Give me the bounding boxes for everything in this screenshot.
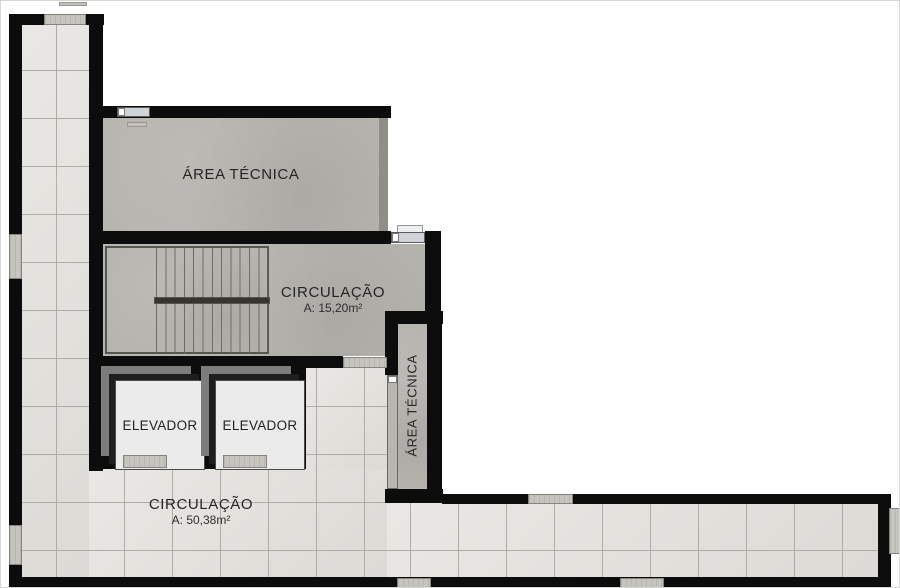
window-left-wall-upper <box>9 234 22 279</box>
door-opening-corridor-north <box>528 494 573 504</box>
circulacao-stairs-label: CIRCULAÇÃO <box>253 284 413 300</box>
door-opening-top-corridor <box>44 14 86 25</box>
elevator-1-door-sill <box>123 455 167 468</box>
stair-treads-upper <box>156 248 268 298</box>
area-tecnica-top-label: ÁREA TÉCNICA <box>141 166 341 182</box>
elevator-2-shaft: ELEVADOR <box>209 374 299 464</box>
area-tecnica-shaft-label: ÁREA TÉCNICA <box>405 346 420 466</box>
window-left-wall-lower <box>9 525 22 565</box>
corridor-bottom-right-floor <box>387 503 878 577</box>
window-cap-icon <box>392 233 399 242</box>
elevator-2: ELEVADOR <box>201 366 291 456</box>
wall-stairs-right <box>425 231 441 314</box>
wall-stairs-top <box>89 231 391 244</box>
elevator-1-shaft: ELEVADOR <box>109 374 199 464</box>
circulacao-hall-area: A: 50,38m² <box>121 513 281 526</box>
elevator-2-label: ELEVADOR <box>223 418 298 433</box>
louver-shaft-icon <box>387 375 398 489</box>
wall-shaft-bottom <box>385 489 443 503</box>
elevator-2-door-sill <box>223 455 267 468</box>
circulacao-stairs-area: A: 15,20m² <box>253 301 413 314</box>
louver-cap-icon <box>388 376 397 383</box>
door-opening-stairs-south <box>343 357 387 368</box>
elevator-1-label: ELEVADOR <box>123 418 198 433</box>
floor-plan: ELEVADOR ELEVADOR ÁREA TÉCNICA CIRCULAÇÃ… <box>0 0 900 588</box>
corridor-left-floor <box>21 24 89 577</box>
elevator-lobby-floor <box>306 368 387 469</box>
stair-treads-lower <box>156 304 268 353</box>
wall-bottom <box>9 577 891 588</box>
vent-tick-area-tecnica <box>127 122 147 127</box>
door-opening-bottom-1 <box>397 578 431 588</box>
circulacao-hall-label: CIRCULAÇÃO <box>121 496 281 512</box>
window-cap-icon <box>118 108 125 116</box>
area-tecnica-top-room-edge <box>379 118 388 231</box>
wall-corridor-bottom-top <box>442 494 891 504</box>
wall-shaft-right <box>427 311 442 503</box>
door-opening-bottom-2 <box>620 578 664 588</box>
vent-tick-top <box>59 2 87 6</box>
window-circulacao-icon <box>391 232 425 243</box>
elevator-1: ELEVADOR <box>101 366 191 456</box>
window-area-tecnica-top-icon <box>117 107 150 117</box>
window-right-wall <box>889 508 900 554</box>
wall-left <box>9 14 22 588</box>
